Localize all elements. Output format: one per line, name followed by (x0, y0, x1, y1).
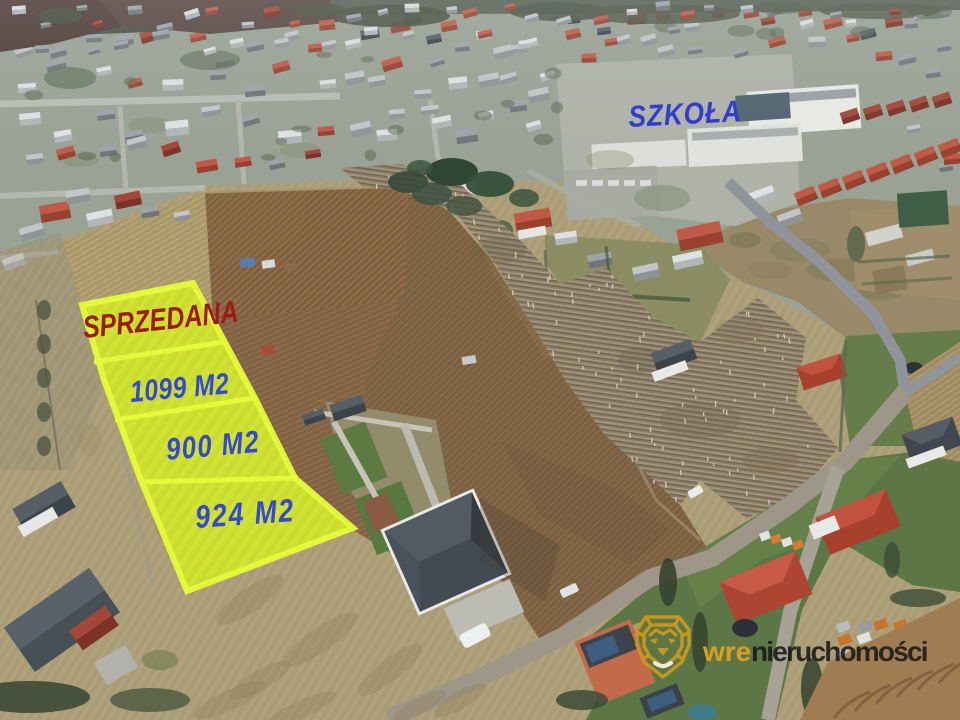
svg-text:nieruchomości: nieruchomości (751, 636, 927, 667)
svg-text:924 M2: 924 M2 (194, 493, 296, 536)
svg-text:wre: wre (702, 636, 751, 667)
